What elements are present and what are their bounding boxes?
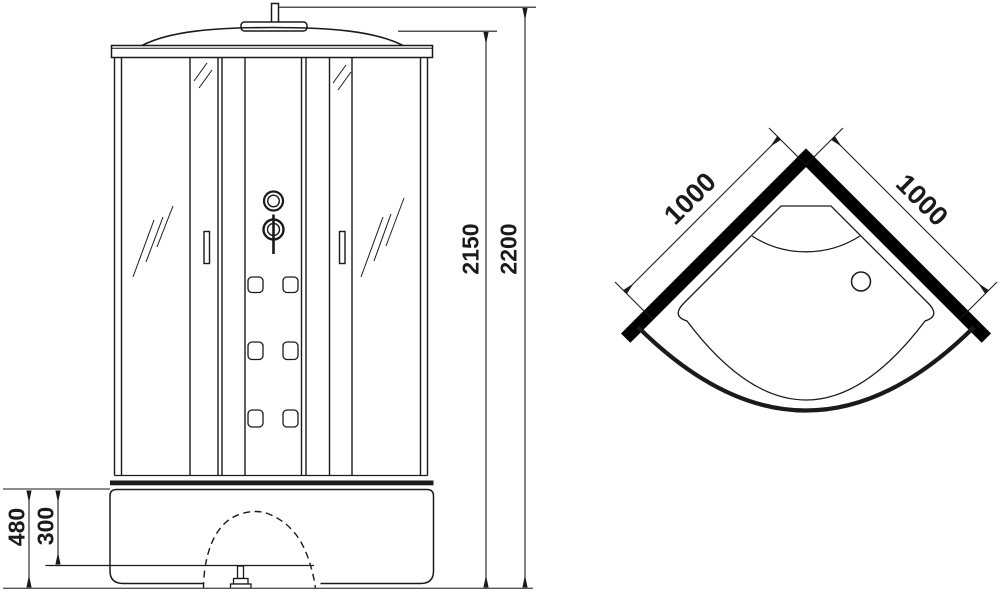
glass-reflections: [133, 63, 404, 277]
shower-cabin-drawing: 480 300 2150 2200 1000 1000: [0, 0, 1000, 594]
left-door-handle: [204, 232, 210, 264]
hydromassage-jets: [248, 277, 298, 427]
roof-group: [112, 4, 433, 58]
chimney-pipe: [272, 4, 279, 24]
drain-access-arch: [204, 512, 316, 590]
right-door-handle: [340, 232, 346, 264]
ext-tick-right-bottom: [960, 282, 997, 319]
tray-outline: [678, 206, 934, 400]
drain-hole: [852, 272, 871, 291]
cabin-frame: [115, 58, 428, 476]
dim-label-tray-inner-height: 300: [33, 507, 59, 545]
drain-trap: [231, 566, 252, 588]
chimney-cap: [241, 22, 307, 31]
dim-label-right-side: 1000: [890, 168, 954, 232]
ext-tick-left-bottom: [615, 282, 652, 319]
wall-left: [621, 149, 815, 343]
base-apron: [110, 490, 434, 584]
wall-right: [797, 149, 991, 343]
base-group: [3, 481, 533, 590]
control-panel: [248, 192, 298, 428]
technical-drawing-page: 480 300 2150 2200 1000 1000: [0, 0, 1000, 594]
front-dimensions: [3, 7, 536, 587]
front-view: 480 300 2150 2200: [3, 4, 536, 590]
ext-tick-right-top: [806, 128, 843, 165]
dim-label-base-height: 480: [4, 508, 30, 546]
dim-label-left-side: 1000: [658, 167, 722, 231]
upper-knob: [264, 192, 283, 211]
tray-rim-band: [110, 481, 434, 486]
dim-label-overall-height: 2200: [496, 223, 522, 274]
cornice: [112, 46, 433, 58]
dim-label-cabin-height: 2150: [458, 223, 484, 274]
top-view: 1000 1000: [615, 128, 997, 411]
ext-tick-left-top: [769, 128, 806, 165]
tray-seat-arc: [752, 236, 860, 252]
tray-front-rim: [638, 327, 974, 411]
